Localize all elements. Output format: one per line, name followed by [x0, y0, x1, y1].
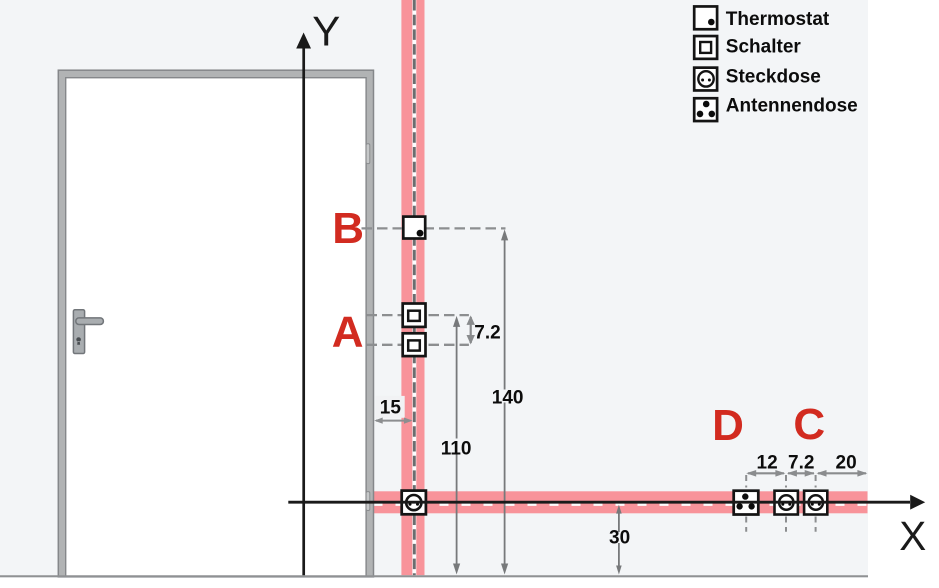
svg-text:A: A	[332, 308, 364, 357]
svg-text:X: X	[899, 513, 926, 559]
svg-text:12: 12	[757, 452, 778, 473]
svg-text:110: 110	[441, 439, 472, 460]
svg-text:7.2: 7.2	[474, 323, 500, 344]
svg-text:Steckdose: Steckdose	[726, 67, 821, 88]
svg-text:7.2: 7.2	[788, 452, 814, 473]
svg-text:B: B	[332, 204, 364, 253]
svg-text:Thermostat: Thermostat	[726, 9, 830, 30]
svg-text:Schalter: Schalter	[726, 36, 802, 57]
svg-text:15: 15	[380, 398, 402, 419]
svg-text:C: C	[793, 400, 825, 449]
svg-text:D: D	[712, 401, 744, 450]
svg-text:20: 20	[836, 452, 857, 473]
svg-text:Antennendose: Antennendose	[726, 96, 858, 117]
svg-text:Y: Y	[312, 8, 340, 55]
svg-text:140: 140	[492, 388, 524, 409]
svg-text:30: 30	[609, 528, 630, 549]
